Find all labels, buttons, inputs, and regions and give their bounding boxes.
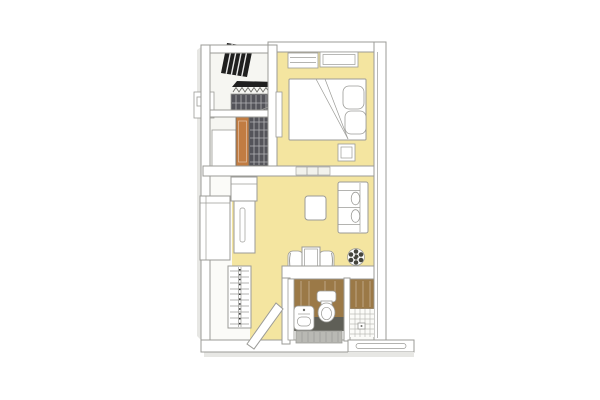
plant-highlight-1 bbox=[353, 255, 355, 257]
toilet bbox=[317, 291, 336, 322]
window-left bbox=[288, 53, 318, 68]
pillow-1 bbox=[343, 86, 364, 109]
left-exterior-wall bbox=[201, 45, 210, 341]
nightstand bbox=[338, 144, 355, 161]
pillow-2 bbox=[345, 111, 366, 134]
bathroom-door-frame bbox=[288, 279, 294, 340]
bathroom-roof bbox=[282, 266, 374, 279]
front-door bbox=[236, 117, 249, 166]
ladder-shelf bbox=[228, 266, 251, 328]
sofa-pillow-2 bbox=[351, 210, 360, 223]
right-exterior-wall bbox=[374, 42, 386, 341]
exterior-storage-box bbox=[200, 196, 230, 260]
bathroom-step bbox=[296, 331, 342, 343]
coffee-table bbox=[305, 196, 326, 220]
potted-plant bbox=[348, 249, 365, 266]
floor-plan-rendering bbox=[0, 0, 600, 400]
middle-wall bbox=[203, 166, 374, 176]
floor-plan-canvas bbox=[0, 0, 600, 400]
shower-divider-wall bbox=[344, 278, 350, 341]
bedroom-top-wall bbox=[268, 42, 386, 52]
bathroom bbox=[282, 266, 374, 344]
entry-platform-top bbox=[348, 340, 414, 352]
closet-divider-wall bbox=[210, 110, 268, 117]
toilet-tank bbox=[317, 291, 336, 302]
kitchen-upper-cabinet bbox=[231, 177, 257, 201]
balcony-parapet-wall bbox=[201, 45, 268, 53]
washbasin-faucet bbox=[303, 309, 305, 311]
shower-drain-hole bbox=[361, 325, 363, 327]
sofa bbox=[338, 182, 368, 233]
entrance-platform bbox=[348, 340, 414, 357]
toilet-bowl bbox=[318, 303, 335, 322]
shoe-cabinet bbox=[212, 130, 236, 166]
wall-door-leaf bbox=[276, 92, 282, 137]
sliding-door-track bbox=[296, 167, 330, 175]
washbasin bbox=[294, 306, 314, 330]
sofa-pillow-1 bbox=[351, 192, 360, 205]
left-wall-shade bbox=[197, 47, 201, 340]
plant-highlight-2 bbox=[357, 258, 359, 260]
entry-platform-front bbox=[348, 352, 414, 357]
